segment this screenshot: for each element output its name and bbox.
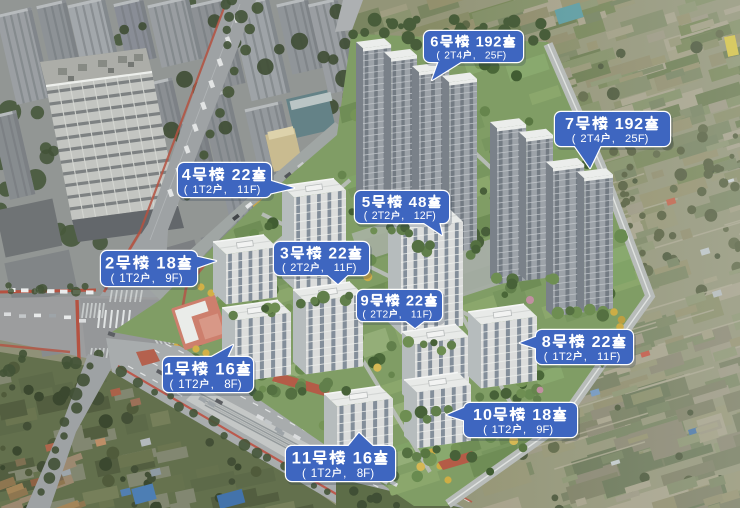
svg-text:192: 192 [615, 115, 643, 133]
svg-text:(: ( [170, 378, 174, 391]
svg-text:(: ( [302, 467, 306, 480]
svg-text:5: 5 [362, 194, 371, 211]
svg-text:10: 10 [473, 406, 492, 424]
svg-text:2T2: 2T2 [370, 309, 388, 320]
svg-text:(: ( [483, 424, 487, 436]
svg-text:1T2: 1T2 [178, 378, 198, 391]
svg-text:25F: 25F [485, 50, 503, 61]
svg-text:8: 8 [542, 333, 551, 351]
svg-text:1T2: 1T2 [192, 184, 212, 196]
svg-text:): ) [179, 272, 183, 285]
svg-text:22: 22 [592, 333, 611, 351]
svg-text:,: , [152, 272, 155, 285]
svg-text:18: 18 [532, 406, 551, 424]
svg-text:): ) [617, 351, 621, 363]
svg-text:,: , [584, 351, 587, 363]
svg-text:(: ( [544, 351, 548, 363]
svg-text:1: 1 [164, 360, 173, 379]
svg-text:25F: 25F [625, 133, 645, 145]
svg-text:9F: 9F [165, 272, 179, 285]
svg-text:(: ( [436, 50, 440, 61]
svg-text:,: , [612, 133, 615, 145]
svg-text:): ) [370, 467, 374, 480]
svg-text:11F: 11F [597, 351, 617, 363]
svg-text:): ) [432, 210, 436, 222]
svg-text:2T2: 2T2 [290, 262, 309, 274]
svg-text:2T4: 2T4 [580, 133, 600, 145]
svg-text:(: ( [282, 262, 286, 274]
svg-text:11: 11 [292, 449, 312, 468]
svg-text:,: , [399, 309, 402, 320]
svg-text:2T4: 2T4 [444, 50, 462, 61]
svg-text:,: , [473, 50, 476, 61]
svg-text:18: 18 [156, 254, 176, 273]
svg-text:,: , [401, 210, 404, 222]
svg-text:8F: 8F [357, 467, 371, 480]
svg-text:1T2: 1T2 [119, 272, 139, 285]
svg-text:9: 9 [361, 294, 369, 310]
svg-text:48: 48 [409, 194, 427, 211]
svg-text:4: 4 [182, 166, 191, 184]
svg-text:(: ( [111, 272, 115, 285]
svg-text:11F: 11F [411, 309, 429, 320]
svg-text:(: ( [362, 309, 366, 320]
svg-text:2: 2 [105, 254, 114, 273]
svg-text:,: , [523, 424, 526, 436]
svg-text:22: 22 [406, 294, 423, 310]
svg-text:8F: 8F [224, 378, 238, 391]
svg-text:2T2: 2T2 [372, 210, 391, 222]
svg-text:,: , [224, 184, 227, 196]
svg-text:): ) [257, 184, 261, 196]
svg-text:3: 3 [280, 246, 289, 263]
svg-text:): ) [429, 309, 432, 320]
svg-text:,: , [343, 467, 346, 480]
svg-text:,: , [321, 262, 324, 274]
svg-text:11F: 11F [334, 262, 353, 274]
svg-text:(: ( [572, 133, 576, 145]
svg-text:22: 22 [232, 166, 251, 184]
svg-text:9F: 9F [536, 424, 549, 436]
svg-text:16: 16 [215, 360, 235, 379]
svg-text:12F: 12F [414, 210, 433, 222]
svg-text:192: 192 [476, 35, 502, 51]
svg-text:): ) [238, 378, 242, 391]
svg-text:11F: 11F [237, 184, 257, 196]
svg-text:): ) [645, 133, 649, 145]
svg-text:): ) [353, 262, 357, 274]
svg-text:(: ( [184, 184, 188, 196]
svg-text:): ) [549, 424, 553, 436]
svg-text:): ) [503, 50, 506, 61]
svg-text:,: , [211, 378, 214, 391]
svg-text:1T2: 1T2 [311, 467, 331, 480]
svg-text:6: 6 [430, 35, 438, 51]
svg-text:22: 22 [328, 246, 347, 263]
svg-text:16: 16 [353, 449, 373, 468]
svg-text:(: ( [364, 210, 368, 222]
svg-text:7: 7 [565, 115, 574, 133]
svg-text:1T2: 1T2 [552, 351, 572, 363]
svg-text:1T2: 1T2 [492, 424, 512, 436]
